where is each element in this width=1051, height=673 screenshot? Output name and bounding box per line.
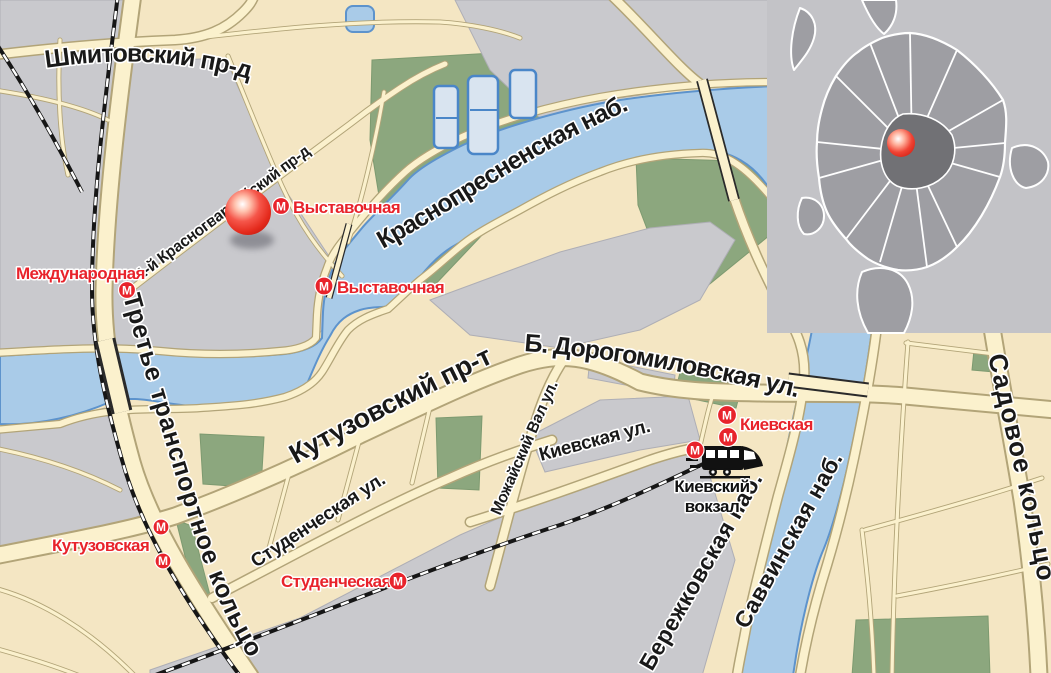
metro-icon: М [389, 572, 407, 590]
metro-icon-letter: М [158, 554, 168, 568]
metro-label-vystavochnaya-2: Выставочная [337, 278, 444, 297]
metro-icon-letter: М [690, 443, 700, 457]
metro-icon-letter: М [723, 431, 733, 445]
location-marker-icon [225, 189, 271, 235]
pond [346, 6, 374, 32]
metro-icon: М [686, 441, 704, 459]
metro-icon: М [273, 198, 290, 215]
metro-label-kutuzovskaya: Кутузовская [52, 536, 149, 555]
metro-label-mezhdunarodnaya: Международная [16, 264, 145, 283]
map-canvas: Шмитовский пр-д 1-й Красногвардейский пр… [0, 0, 1051, 673]
metro-icon-letter: М [722, 409, 732, 423]
metro-label-studencheskaya: Студенческая [281, 572, 391, 591]
metro-icon: М [153, 519, 169, 535]
metro-icon-letter: М [319, 279, 329, 293]
metro-icon-letter: М [276, 199, 286, 213]
station-label-line2: вокзал [685, 497, 740, 516]
moscow-map-svg: Шмитовский пр-д 1-й Красногвардейский пр… [0, 0, 1051, 673]
metro-icon: М [718, 406, 737, 425]
metro-label-kievskaya: Киевская [740, 415, 813, 434]
station-label-line1: Киевский [674, 477, 749, 496]
inset-marker-icon [887, 129, 915, 157]
metro-icon-letter: М [393, 574, 403, 588]
metro-icon-letter: М [156, 520, 166, 534]
metro-label-vystavochnaya-1: Выставочная [293, 198, 400, 217]
metro-icon-letter: М [122, 283, 132, 297]
inset-map [767, 0, 1051, 333]
metro-icon: М [155, 553, 171, 569]
metro-icon: М [119, 282, 136, 299]
metro-icon: М [719, 428, 738, 447]
metro-icon: М [315, 277, 333, 295]
